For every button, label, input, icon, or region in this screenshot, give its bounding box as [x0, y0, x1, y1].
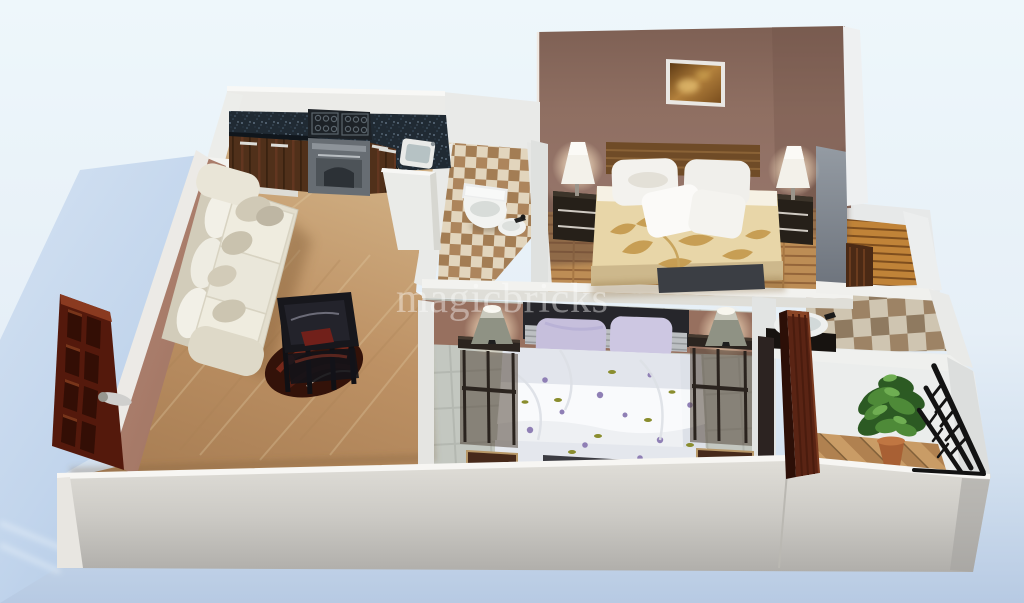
svg-text:magicbricks: magicbricks: [396, 276, 608, 322]
